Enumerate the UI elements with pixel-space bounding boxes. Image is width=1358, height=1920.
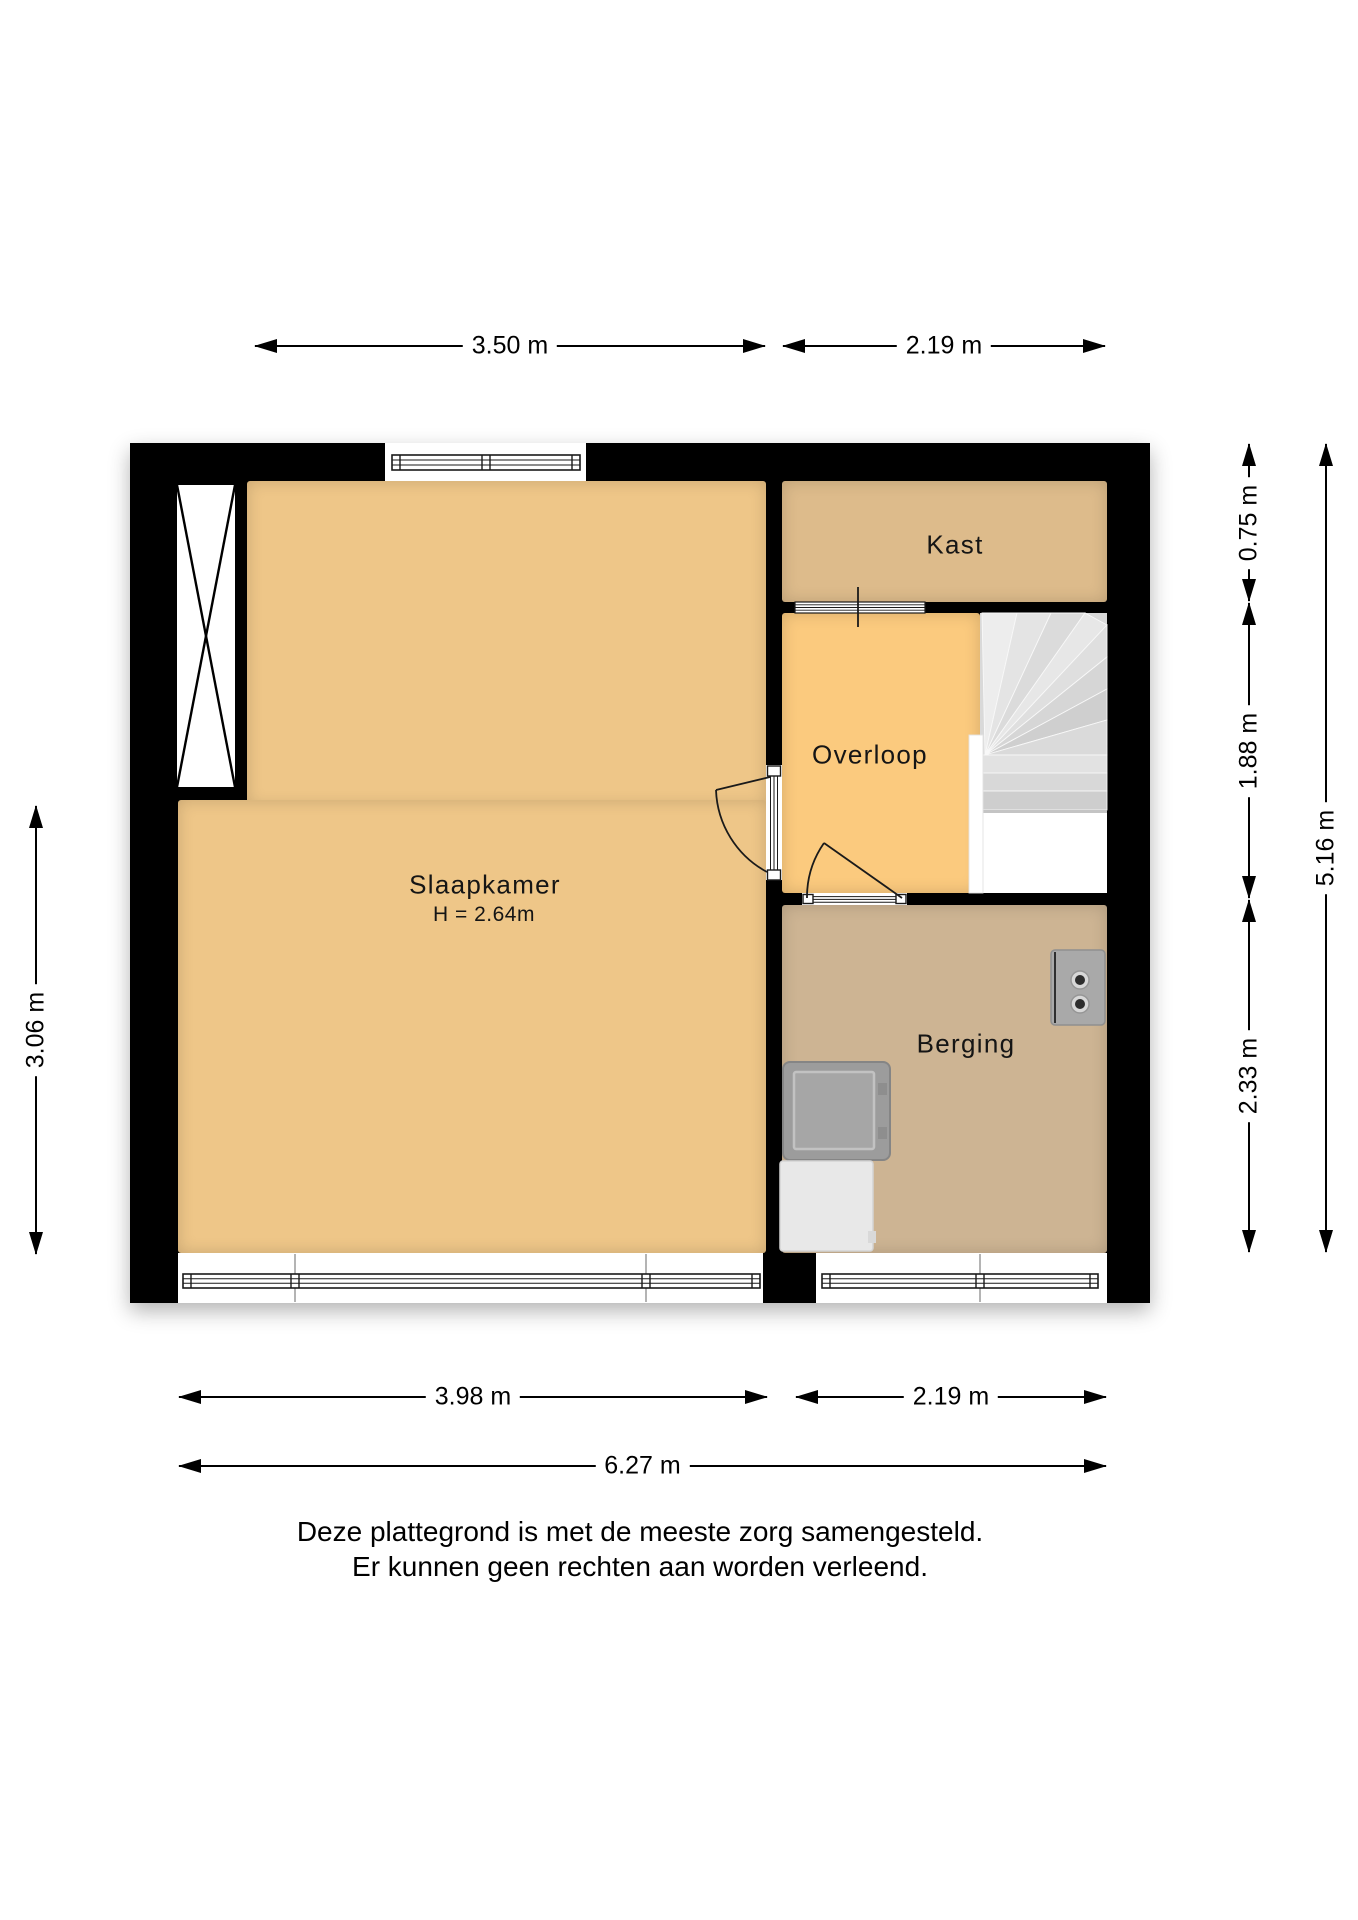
- arrow-up-icon: [29, 805, 43, 828]
- disclaimer-line-1: Deze plattegrond is met de meeste zorg s…: [130, 1514, 1150, 1549]
- arrow-up-icon: [1242, 899, 1256, 922]
- room-label-berging: Berging: [917, 1029, 1016, 1060]
- sliding-door-icon: [795, 587, 925, 627]
- dimension-bottom-berging: 2.19 m: [795, 1382, 1107, 1412]
- floorplan-page: 3.50 m 2.19 m 3.06 m 0.75 m 1.88 m 2.33 …: [0, 0, 1358, 1920]
- dimension-right-berging: 2.33 m: [1234, 899, 1264, 1253]
- floor-plan: Kast Overloop Slaapkamer H = 2.64m Bergi…: [130, 443, 1150, 1303]
- window-icon: [178, 1253, 763, 1303]
- dimension-label: 1.88 m: [1235, 704, 1264, 796]
- dimension-label: 5.16 m: [1312, 802, 1341, 894]
- dimension-label: 2.19 m: [904, 1383, 998, 1412]
- dimension-top-kast: 2.19 m: [782, 331, 1106, 361]
- arrow-right-icon: [743, 339, 766, 353]
- arrow-right-icon: [745, 1390, 768, 1404]
- room-ceiling-height-label: H = 2.64m: [433, 903, 535, 927]
- dimension-label: 6.27 m: [595, 1452, 689, 1481]
- dimension-top-slaapkamer: 3.50 m: [254, 331, 766, 361]
- disclaimer-line-2: Er kunnen geen rechten aan worden verlee…: [130, 1549, 1150, 1584]
- dimension-label: 2.33 m: [1235, 1030, 1264, 1122]
- disclaimer: Deze plattegrond is met de meeste zorg s…: [130, 1514, 1150, 1584]
- arrow-down-icon: [1242, 876, 1256, 899]
- boiler-icon: [1051, 950, 1105, 1025]
- dimension-bottom-slaapkamer: 3.98 m: [178, 1382, 768, 1412]
- dimension-label: 2.19 m: [897, 332, 991, 361]
- dimension-right-kast: 0.75 m: [1234, 443, 1264, 602]
- dimension-label: 0.75 m: [1235, 476, 1264, 568]
- room-label-overloop: Overloop: [812, 740, 928, 771]
- room-label-slaapkamer: Slaapkamer: [409, 870, 561, 901]
- room-label-kast: Kast: [926, 530, 983, 561]
- dimension-bottom-total: 6.27 m: [178, 1451, 1107, 1481]
- arrow-right-icon: [1083, 339, 1106, 353]
- dimension-label: 3.50 m: [463, 332, 557, 361]
- dimension-left-slaapkamer: 3.06 m: [21, 805, 51, 1255]
- floorplan-symbols: [130, 443, 1150, 1303]
- arrow-down-icon: [1242, 579, 1256, 602]
- duct-x-icon: [177, 485, 235, 787]
- window-icon: [816, 1253, 1107, 1303]
- arrow-down-icon: [1319, 1230, 1333, 1253]
- winder-stairs-icon: [969, 613, 1107, 893]
- washing-machine-icon: [783, 1062, 890, 1160]
- arrow-left-icon: [254, 339, 277, 353]
- arrow-left-icon: [178, 1390, 201, 1404]
- arrow-right-icon: [1084, 1459, 1107, 1473]
- arrow-up-icon: [1242, 602, 1256, 625]
- arrow-up-icon: [1242, 443, 1256, 466]
- arrow-left-icon: [795, 1390, 818, 1404]
- dimension-label: 3.06 m: [22, 984, 51, 1076]
- window-icon: [385, 443, 586, 481]
- swing-door-icon: [716, 765, 782, 880]
- swing-door-icon: [802, 843, 907, 905]
- dimension-right-total: 5.16 m: [1311, 443, 1341, 1253]
- arrow-right-icon: [1084, 1390, 1107, 1404]
- arrow-down-icon: [1242, 1230, 1256, 1253]
- arrow-left-icon: [178, 1459, 201, 1473]
- arrow-left-icon: [782, 339, 805, 353]
- arrow-up-icon: [1319, 443, 1333, 466]
- arrow-down-icon: [29, 1232, 43, 1255]
- dryer-icon: [780, 1161, 876, 1251]
- dimension-right-overloop: 1.88 m: [1234, 602, 1264, 899]
- dimension-label: 3.98 m: [426, 1383, 520, 1412]
